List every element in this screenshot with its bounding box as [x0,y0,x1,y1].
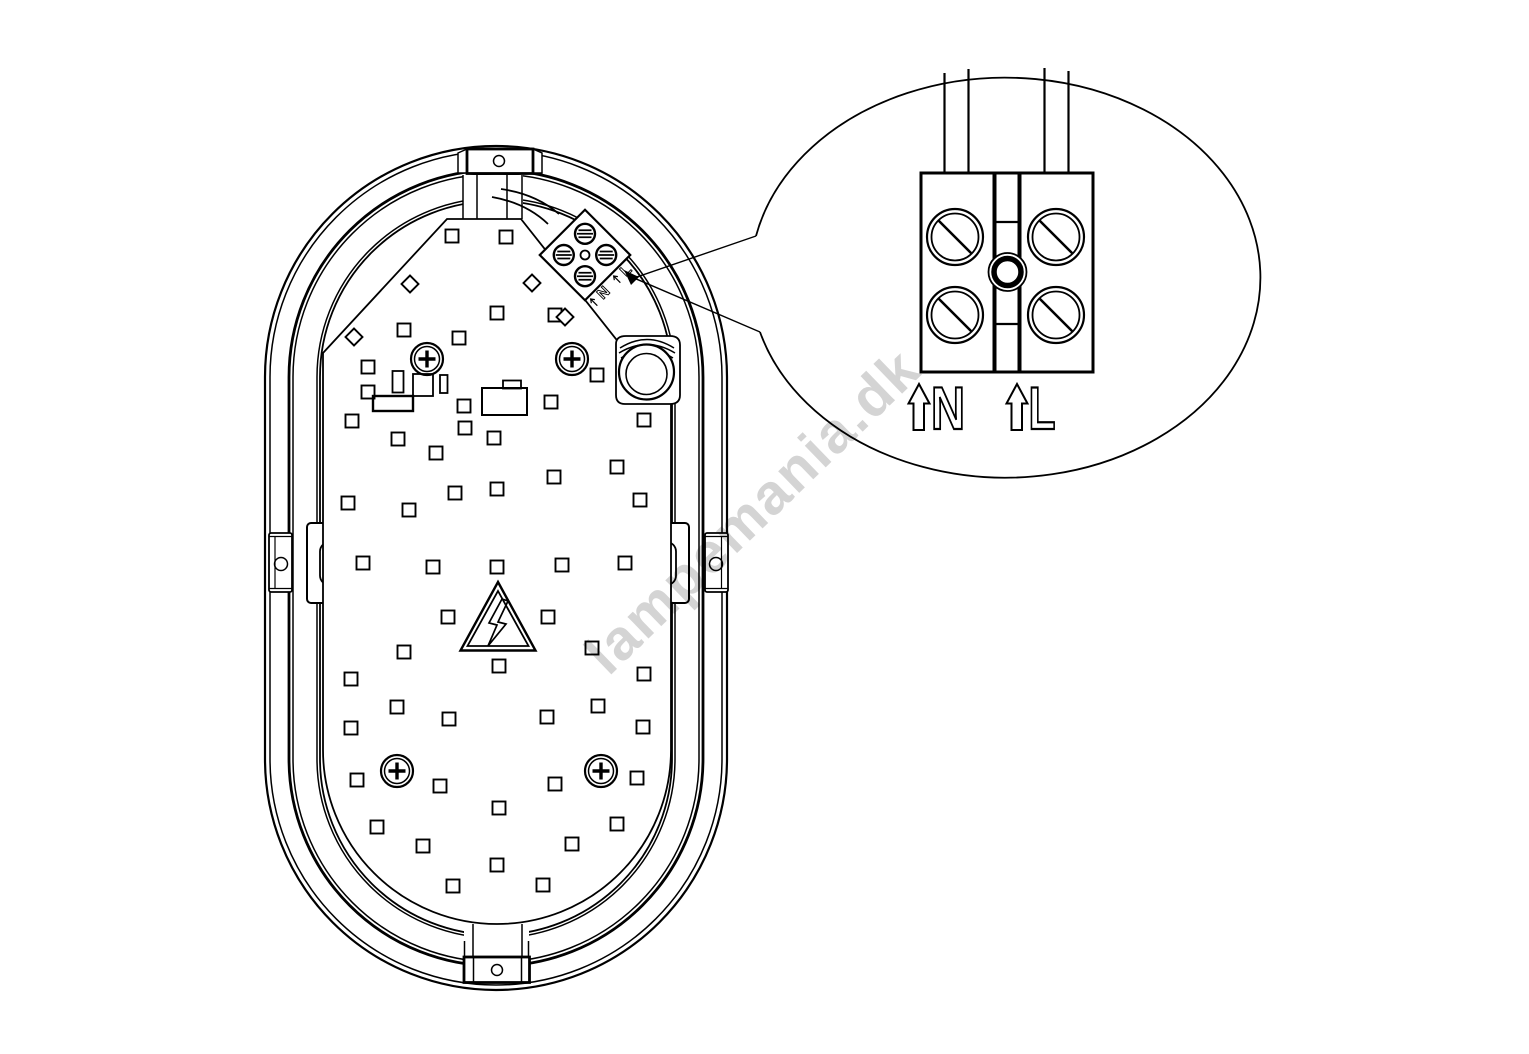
led-pad [371,821,384,834]
terminal-screw-main [575,266,595,286]
led-pad [634,494,647,507]
led-pad [541,711,554,724]
led-pad [443,713,456,726]
led-pad [611,461,624,474]
detail-leader [624,236,760,332]
mounting-tab-top [458,149,542,219]
led-pad [459,422,472,435]
led-pad [500,231,513,244]
led-pad [591,369,604,382]
led-pad [434,780,447,793]
up-arrow-icon [612,274,622,284]
led-pad [638,668,651,681]
phillips-screw [585,755,617,787]
led-pad [491,859,504,872]
live-arrow-icon [1007,384,1028,430]
phillips-screw [556,343,588,375]
label-live: L [1007,375,1056,442]
neutral-letter: N [931,375,965,442]
led-pad [566,838,579,851]
terminal-screw-detail [927,209,983,265]
led-pad [427,561,440,574]
phillips-screw [411,343,443,375]
terminal-screw-main [575,224,595,244]
led-pad [493,660,506,673]
side-tab-left [269,533,292,592]
terminal-screw-detail [1028,209,1084,265]
led-pad [346,415,359,428]
terminal-screw-main [554,245,574,265]
led-pad [556,559,569,572]
led-pad [491,561,504,574]
led-pad [417,840,430,853]
terminal-screw-detail [1028,287,1084,343]
led-pad [345,722,358,735]
led-pad [637,721,650,734]
terminal-block-detail [921,173,1093,372]
mounting-tab-bottom [464,924,530,983]
led-pad [398,324,411,337]
led-pad [362,361,375,374]
led-pad [549,778,562,791]
terminal-screw-main [596,245,616,265]
led-pad [619,557,632,570]
led-pad [449,487,462,500]
led-pad [345,673,358,686]
live-letter: L [1029,375,1056,442]
led-pad [430,447,443,460]
terminal-screw-detail [927,287,983,343]
supply-wire-neutral [945,69,969,173]
led-pad [403,504,416,517]
led-pad [545,396,558,409]
led-pad [453,332,466,345]
phillips-screw [381,755,413,787]
page: N L N [0,0,1529,1054]
led-pad [342,497,355,510]
led-pad [442,611,455,624]
led-pad [537,879,550,892]
led-pad [391,701,404,714]
diagram-canvas: N L N [0,0,1529,1054]
led-pad [458,400,471,413]
led-pad [491,483,504,496]
led-pad [447,880,460,893]
led-pad [611,818,624,831]
led-pad [398,646,411,659]
led-pad [488,432,501,445]
led-pad [493,802,506,815]
led-pad [548,471,561,484]
led-pad [357,557,370,570]
led-pad [631,772,644,785]
led-pad [351,774,364,787]
led-pad [542,611,555,624]
led-pad [446,230,459,243]
led-pad [491,307,504,320]
led-pad [592,700,605,713]
terminal-center-hole [994,259,1021,286]
led-pad [392,433,405,446]
led-pad [638,414,651,427]
cable-gland [616,336,680,404]
